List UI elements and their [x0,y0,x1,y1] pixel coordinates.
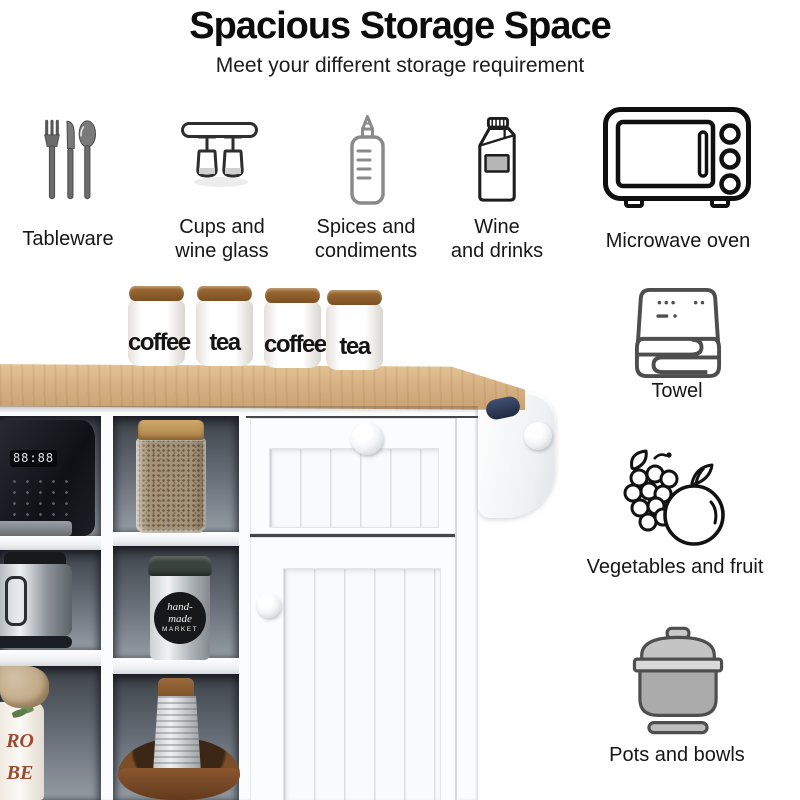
shelf [0,536,101,550]
feature-label-microwave: Microwave oven [593,229,763,253]
page-subtitle: Meet your different storage requirement [0,54,800,78]
feature-label-tableware: Tableware [8,227,128,251]
canister-lid [327,290,382,305]
side-label-pots: Pots and bowls [592,743,762,767]
canister-tea-1: tea [196,286,253,366]
feature-label-cups: Cups andwine glass [157,215,287,263]
grain-jar [136,438,206,533]
coffee-machine-display: 88:88 [10,450,57,467]
door-knob [257,594,281,618]
wood-countertop [0,359,525,410]
canister-text: tea [326,333,383,361]
coffee-machine-base [0,521,72,536]
folded-towel-icon [633,286,723,380]
shelf [0,650,101,666]
kettle [0,552,72,648]
towel-bar-end [524,422,552,450]
cabinet-door [250,537,456,800]
grapes-and-apple-icon [610,447,732,553]
side-label-vegetables: Vegetables and fruit [565,555,785,579]
drawer-beadboard [269,448,439,528]
jar-text: BE [0,762,40,785]
side-label-towel: Towel [627,379,727,403]
drawer-knob [351,423,383,455]
canister-text: coffee [128,329,185,357]
jar-text: RO [0,730,40,753]
canister-lid [265,288,320,303]
cooking-pot-icon [629,621,727,739]
canister-coffee-1: coffee [128,286,185,366]
canister-tea-2: tea [326,290,383,370]
canister-lid [197,286,252,301]
coffee-machine: 88:88 [0,420,95,536]
stile-line [455,418,457,800]
countertop-shadow [0,406,478,413]
canister-text: tea [196,329,253,357]
burlap-lid [0,666,49,708]
handmade-canister-label: hand- made MARKET [154,592,206,644]
drawer [250,418,456,534]
milk-carton-icon [472,117,522,203]
coffee-machine-buttons [8,476,70,522]
canister-coffee-2: coffee [264,288,321,368]
canister-text: coffee [264,331,321,359]
squeeze-bottle-icon [349,115,386,205]
page-title: Spacious Storage Space [0,5,800,48]
feature-label-spices: Spices andcondiments [300,215,432,263]
feature-label-wine: Wineand drinks [437,215,557,263]
handmade-canister-lid [148,556,212,576]
kettle-base [0,636,72,648]
canister-lid [129,286,184,301]
wine-glass-rack-icon [180,121,260,188]
microwave-oven-icon [602,106,752,210]
door-beadboard [283,568,441,800]
shelf [113,658,239,674]
cutlery-icon [37,119,97,201]
kettle-handle [5,576,27,626]
cork-lid [138,420,204,440]
shelf [113,532,239,546]
product-infographic: Spacious Storage Space Meet your differe… [0,0,800,800]
